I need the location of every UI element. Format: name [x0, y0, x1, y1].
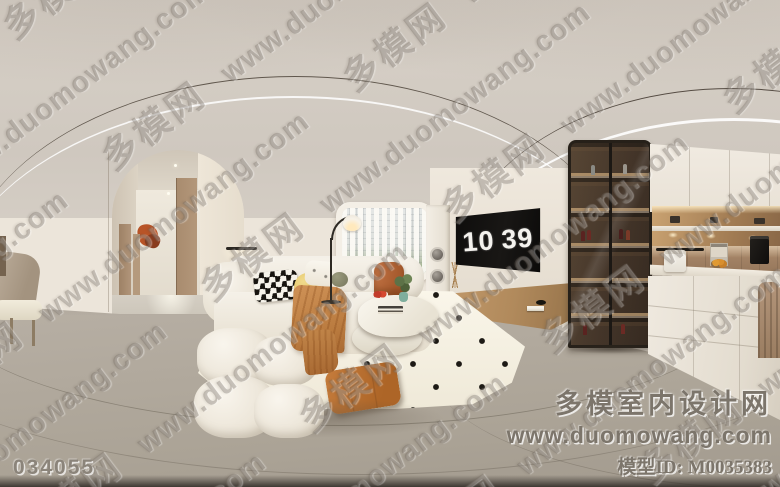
- shelf-spotlight: [668, 232, 678, 238]
- glassware: [623, 164, 627, 174]
- shelf-item: [754, 218, 765, 224]
- shelf-item: [670, 216, 680, 223]
- decor-bowl: [536, 300, 546, 305]
- floor-lamp-base: [321, 300, 341, 304]
- wine-bottle: [581, 231, 585, 241]
- water-dispenser: [750, 236, 769, 264]
- dried-grass-decor: [448, 262, 462, 288]
- watermark-brand-block: 多模室内设计网 www.duomowang.com 模型ID: M0035383: [507, 382, 772, 479]
- left-chair-leg: [10, 318, 13, 344]
- dining-chair-right: [758, 282, 780, 358]
- wall-corner-line: [108, 150, 109, 312]
- tv-clock-minute: 39: [500, 223, 534, 256]
- left-chair-leg: [32, 320, 35, 346]
- kitchen-shelf-board: [652, 226, 780, 231]
- washer-door: [430, 247, 445, 262]
- hallway-door-right: [176, 178, 197, 298]
- hallway-ceiling-light: [167, 192, 170, 195]
- hallway-ceiling-light: [174, 164, 177, 167]
- left-edge-furniture: [0, 236, 6, 276]
- coffee-machine: [664, 250, 686, 272]
- floor-lamp-pole: [330, 238, 332, 302]
- floor-lamp-shade: [343, 215, 361, 231]
- tv-screen: 10 39: [455, 206, 541, 275]
- wine-bottle: [626, 230, 630, 240]
- model-id-value: M0035383: [688, 457, 772, 478]
- table-books: [378, 306, 403, 314]
- wine-bottle: [619, 229, 623, 239]
- panorama-scene: 10 39: [0, 0, 780, 487]
- wine-bottle: [583, 325, 587, 335]
- decor-books: [527, 306, 544, 311]
- display-cabinet: [568, 140, 652, 348]
- fruit-bowl: [711, 259, 727, 268]
- table-vase: [399, 292, 408, 302]
- watermark-brand-name: 多模室内设计网: [507, 382, 772, 421]
- pillow-sage: [331, 272, 348, 287]
- shelf-spotlight: [706, 233, 716, 239]
- throw-blanket-drape: [300, 328, 339, 376]
- cabinet-shadow: [566, 344, 656, 354]
- glassware: [591, 165, 595, 175]
- watermark-corner-code: 034055: [13, 456, 95, 480]
- laundry-column: [426, 205, 450, 298]
- shelf-item: [710, 217, 718, 223]
- table-fruit-plate: [373, 291, 388, 298]
- wine-bottle: [587, 230, 591, 240]
- watermark-model-id: 模型ID: M0035383: [507, 452, 772, 479]
- hallway-door-left-2: [133, 234, 140, 302]
- dryer-door: [430, 269, 445, 284]
- tv-clock-hour: 10: [461, 225, 495, 258]
- cabinet-door-divider: [609, 143, 612, 345]
- model-id-label: 模型ID:: [617, 457, 682, 478]
- wine-bottle: [621, 324, 625, 334]
- wall-lamp: [226, 247, 257, 250]
- left-chair-seat: [0, 300, 42, 320]
- watermark-brand-url: www.duomowang.com: [507, 422, 772, 449]
- sofa-puff: [254, 384, 324, 438]
